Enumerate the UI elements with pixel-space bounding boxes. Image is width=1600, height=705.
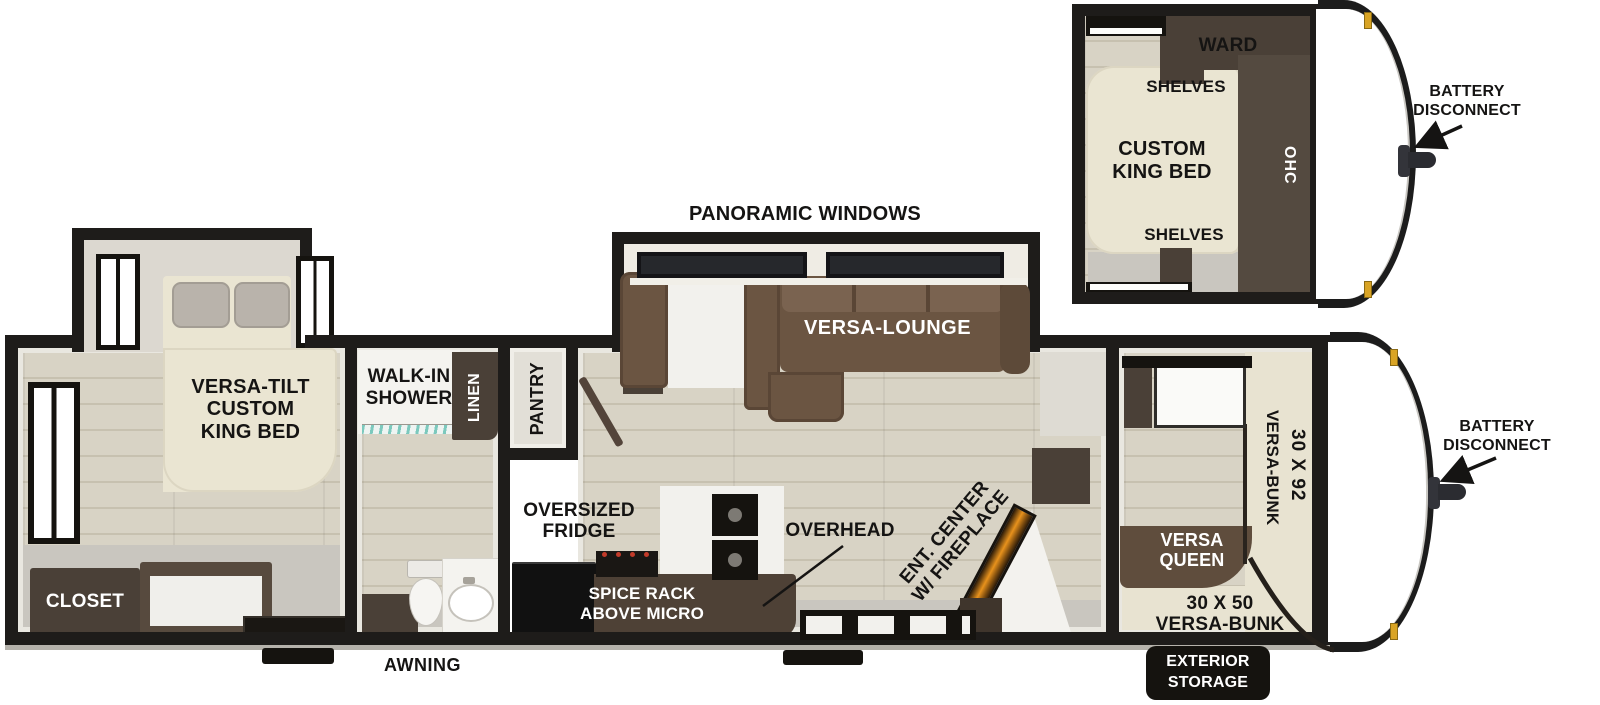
lounge-window-left xyxy=(637,252,807,278)
rear-overhead-bar xyxy=(1122,356,1252,368)
stabilizer-step-left xyxy=(262,648,334,664)
lounge-window-sill xyxy=(630,278,1028,285)
main-battery-hitch-nub xyxy=(1438,484,1466,500)
bunk92-size-label: 30 X 92 xyxy=(1283,388,1307,543)
entry-steps xyxy=(800,610,976,640)
bedroom-slide-window-left xyxy=(96,254,140,350)
sink-knob-top xyxy=(728,508,742,522)
bathroom-faucet xyxy=(463,577,475,584)
closet-label: CLOSET xyxy=(33,592,137,613)
stove-knob-3 xyxy=(630,552,635,557)
inset-king-bed-label: CUSTOM KING BED xyxy=(1100,138,1224,184)
panoramic-windows-label: PANORAMIC WINDOWS xyxy=(655,204,955,226)
inset-window-top-pane xyxy=(1090,28,1162,34)
sofa-left-armrest xyxy=(620,272,668,388)
main-wall-bottom-trim xyxy=(5,645,1332,650)
bed-pillow-right xyxy=(234,282,290,328)
battery-arrow-right xyxy=(1446,458,1496,479)
divider-living-rear xyxy=(1106,342,1119,632)
bedroom-window xyxy=(28,382,80,544)
stabilizer-step-right xyxy=(783,650,863,665)
bathroom-sink xyxy=(448,584,494,622)
main-wall-top-right xyxy=(1035,335,1352,348)
bed-pillow-left xyxy=(172,282,230,328)
rear-cabinet xyxy=(1124,368,1152,428)
versa-queen-label: VERSA QUEEN xyxy=(1146,530,1238,570)
inset-cap-marker-bottom xyxy=(1364,281,1372,298)
spice-rack-label: SPICE RACK ABOVE MICRO xyxy=(567,584,717,623)
awning-label: AWNING xyxy=(360,656,485,675)
sofa-table xyxy=(668,272,744,388)
stove-knob-1 xyxy=(602,552,607,557)
main-wall-left xyxy=(5,335,18,645)
inset-shelves-bottom-label: SHELVES xyxy=(1128,226,1240,244)
bunk92-name-label: VERSA-BUNK xyxy=(1257,382,1281,554)
inset-window-bottom-pane xyxy=(1090,284,1188,290)
stove-knob-2 xyxy=(616,552,621,557)
inset-ohc-label: OHC xyxy=(1272,134,1298,196)
inset-wall-bottom xyxy=(1072,292,1322,304)
bunk50-label: 30 X 50 VERSA-BUNK xyxy=(1140,594,1300,636)
lounge-side-cabinet xyxy=(1032,448,1090,504)
shower-glass xyxy=(362,424,456,434)
sofa-right-armrest xyxy=(1000,282,1030,374)
inset-battery-hitch-nub xyxy=(1408,152,1436,168)
exterior-storage-label: EXTERIOR STORAGE xyxy=(1146,652,1270,694)
inset-battery-disconnect-label: BATTERY DISCONNECT xyxy=(1398,82,1536,120)
sink-knob-bottom xyxy=(728,553,742,567)
ent-center-label: ENT. CENTER W/ FIREPLACE xyxy=(868,470,1038,610)
rear-bunk-edge xyxy=(1243,424,1247,564)
inset-window-top xyxy=(1086,16,1166,36)
toilet-tank xyxy=(407,560,445,578)
main-battery-disconnect-label: BATTERY DISCONNECT xyxy=(1428,417,1566,455)
pantry-label: PANTRY xyxy=(508,350,568,448)
oversized-fridge-label: OVERSIZED FRIDGE xyxy=(510,500,648,543)
linen-label: LINEN xyxy=(448,356,500,440)
main-cap-marker-top xyxy=(1390,349,1398,366)
rv-floorplan-diagram: WARD SHELVES CUSTOM KING BED SHELVES OHC… xyxy=(0,0,1600,705)
stove-knob-4 xyxy=(644,552,649,557)
versa-lounge-label: VERSA-LOUNGE xyxy=(795,318,980,340)
inset-wall-top xyxy=(1072,4,1322,16)
inset-wall-left xyxy=(1072,4,1085,304)
lounge-window-right xyxy=(826,252,1004,278)
lounge-side-wall-face xyxy=(1040,352,1106,436)
inset-shelves-top-label: SHELVES xyxy=(1130,78,1242,96)
sofa-chaise xyxy=(768,372,844,422)
rear-tv xyxy=(1154,364,1246,428)
versa-tilt-bed-label: VERSA-TILT CUSTOM KING BED xyxy=(168,376,333,443)
battery-arrow-top xyxy=(1420,126,1462,145)
inset-cap-marker-top xyxy=(1364,12,1372,29)
main-cap-marker-bottom xyxy=(1390,623,1398,640)
pantry-wall-bottom xyxy=(498,448,578,460)
inset-ward-label: WARD xyxy=(1192,36,1264,57)
